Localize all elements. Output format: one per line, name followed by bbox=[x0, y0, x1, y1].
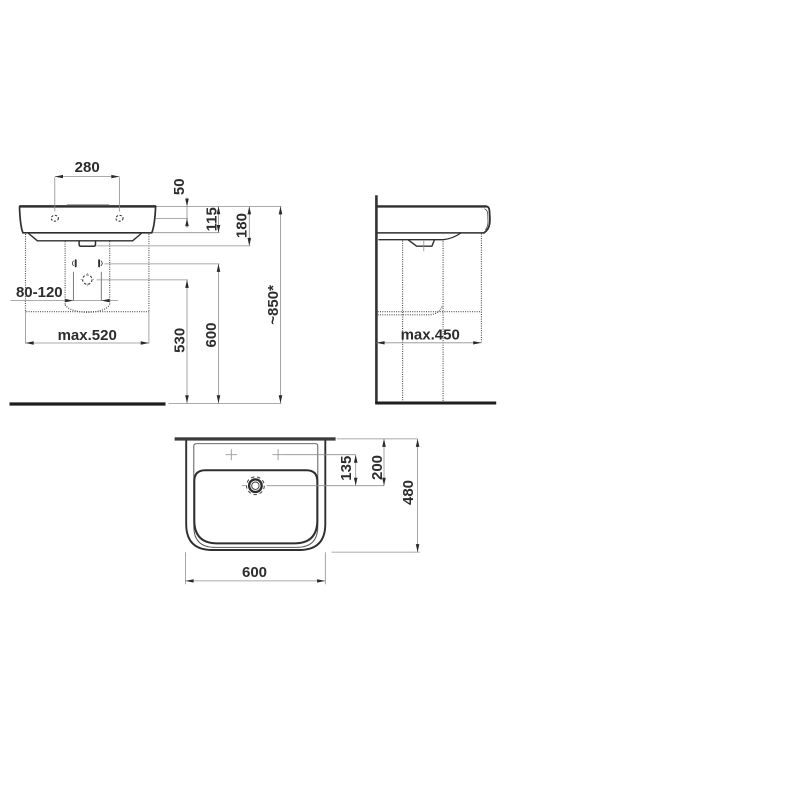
svg-text:80-120: 80-120 bbox=[16, 284, 63, 301]
svg-text:115: 115 bbox=[203, 207, 220, 231]
svg-text:50: 50 bbox=[171, 178, 188, 195]
svg-text:180: 180 bbox=[234, 213, 251, 238]
svg-text:135: 135 bbox=[338, 456, 355, 481]
svg-text:max.520: max.520 bbox=[58, 327, 117, 344]
svg-text:600: 600 bbox=[242, 564, 267, 581]
svg-text:~850*: ~850* bbox=[265, 285, 282, 325]
svg-text:200: 200 bbox=[369, 455, 386, 480]
svg-text:480: 480 bbox=[400, 480, 417, 505]
svg-text:max.450: max.450 bbox=[401, 326, 460, 343]
svg-text:600: 600 bbox=[203, 322, 220, 347]
svg-text:530: 530 bbox=[172, 328, 189, 353]
svg-text:280: 280 bbox=[75, 159, 100, 176]
